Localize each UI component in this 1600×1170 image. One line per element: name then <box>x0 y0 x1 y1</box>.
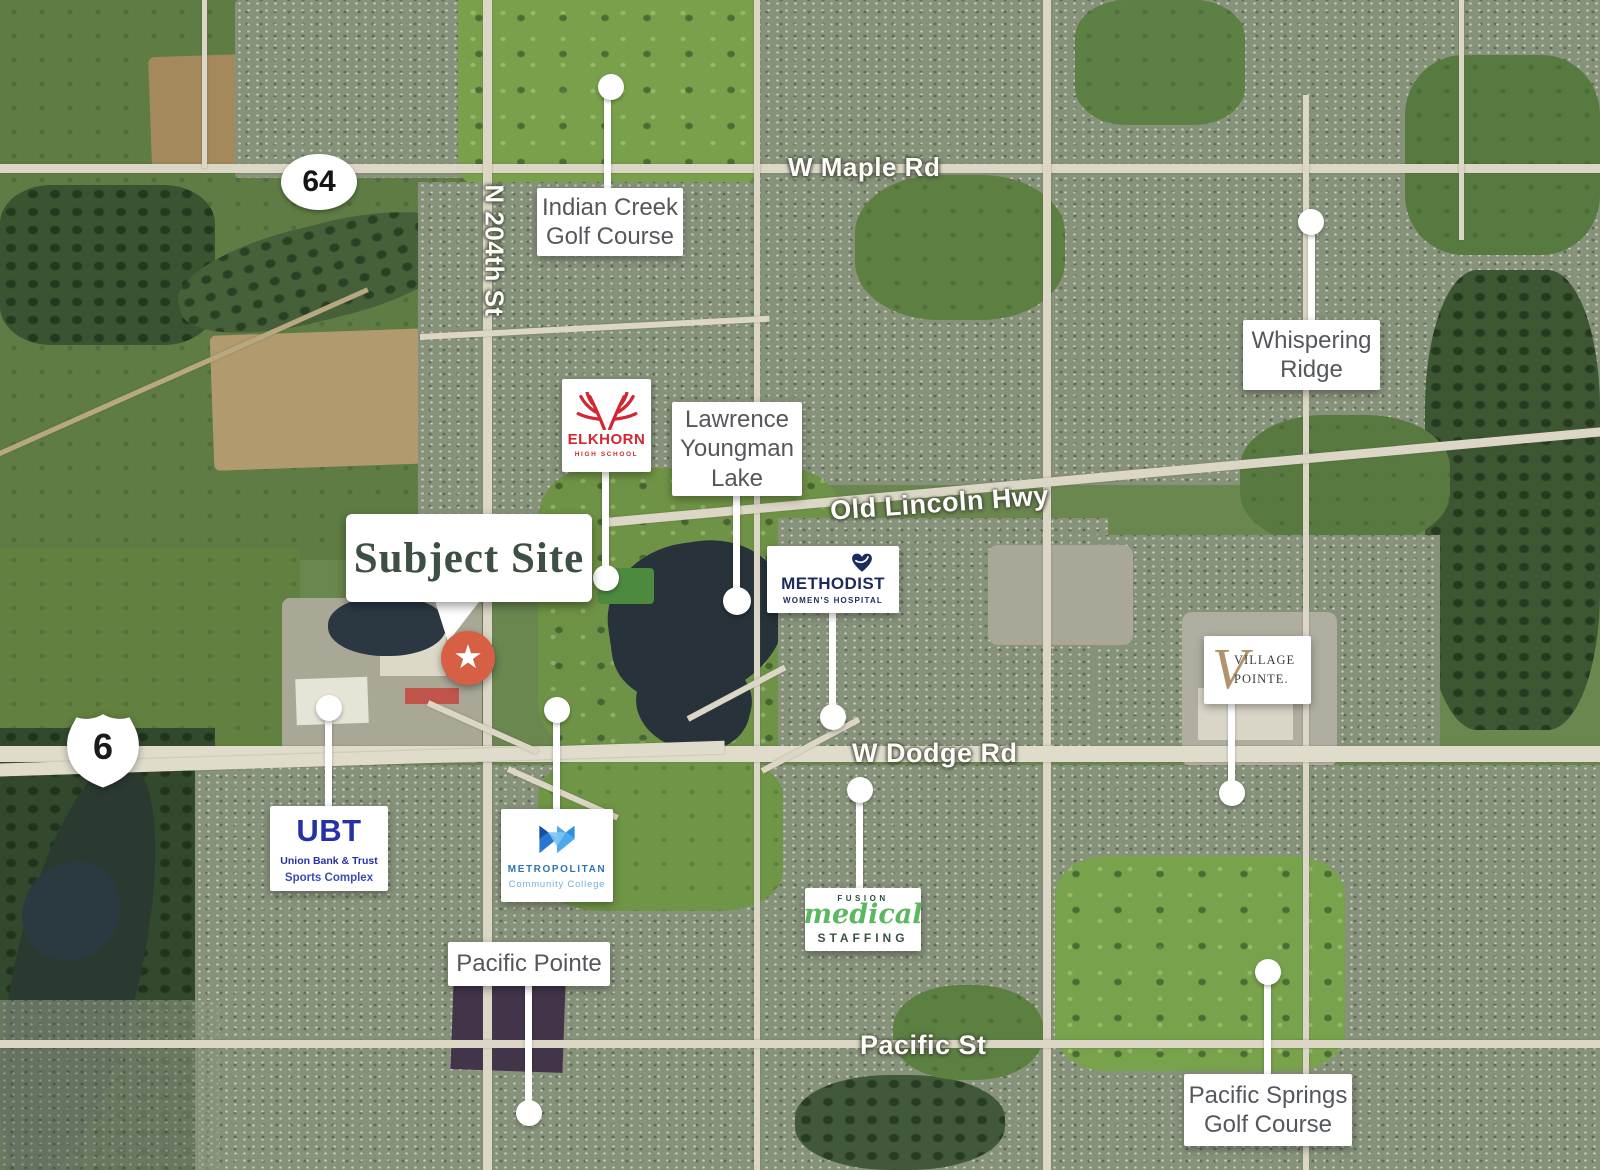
subject-site-bubble: Subject Site <box>346 514 592 602</box>
map-terrain-patch <box>855 175 1065 320</box>
callout-label-line: Youngman <box>680 434 794 463</box>
subject-site-label: Subject Site <box>354 534 585 583</box>
map-terrain-patch <box>210 328 435 471</box>
road-line <box>202 0 207 168</box>
callout-dot <box>516 1100 542 1126</box>
callout-fusion-medical-staffing: FUSION medical STAFFING <box>805 888 921 951</box>
methodist-heart-icon <box>851 553 873 573</box>
road-label-n-204th-st: N 204th St <box>479 181 510 321</box>
ubt-line1: Union Bank & Trust <box>280 855 377 868</box>
callout-elkhorn-high-school: ELKHORN HIGH SCHOOL <box>562 379 651 472</box>
ubt-line2: Sports Complex <box>285 871 373 885</box>
map-commercial-patch <box>988 545 1133 645</box>
callout-dot <box>723 587 751 615</box>
callout-dot <box>593 565 619 591</box>
callout-line <box>733 494 740 602</box>
map-terrain-patch <box>795 1075 1005 1170</box>
elkhorn-antlers-icon <box>571 392 643 430</box>
map-terrain-patch <box>0 185 215 345</box>
elkhorn-subtitle: HIGH SCHOOL <box>575 451 638 459</box>
metropolitan-m-icon <box>535 821 579 859</box>
map-terrain-patch <box>1240 415 1450 545</box>
callout-lawrence-youngman-lake: Lawrence Youngman Lake <box>672 402 802 496</box>
road-pacific-st <box>0 1040 1600 1048</box>
callout-line <box>1308 220 1315 322</box>
road-line <box>1043 0 1051 1170</box>
callout-label-line: Ridge <box>1280 355 1343 384</box>
callout-dot <box>820 704 846 730</box>
fusion-line3: STAFFING <box>817 931 908 946</box>
callout-line <box>856 788 863 890</box>
map-golf-course-patch <box>1055 856 1345 1071</box>
road-label-w-dodge-rd: W Dodge Rd <box>852 738 1017 769</box>
callout-line <box>602 470 609 580</box>
road-label-pacific-st: Pacific St <box>860 1030 987 1061</box>
callout-indian-creek-golf-course: Indian Creek Golf Course <box>537 188 683 256</box>
callout-pacific-springs-golf-course: Pacific Springs Golf Course <box>1184 1074 1352 1146</box>
subject-site-marker: ★ <box>441 631 495 685</box>
callout-line <box>829 611 836 718</box>
callout-line <box>1264 974 1271 1076</box>
callout-line <box>553 708 560 811</box>
methodist-wordmark: METHODIST <box>781 574 885 595</box>
callout-dot <box>544 697 570 723</box>
map-terrain-patch <box>0 1000 220 1170</box>
metropolitan-subtitle: Community College <box>509 879 606 891</box>
route-6-number: 6 <box>64 726 142 768</box>
road-line <box>1459 0 1464 240</box>
callout-dot <box>1298 209 1324 235</box>
route-6-shield: 6 <box>64 710 142 790</box>
callout-line <box>325 706 332 808</box>
fusion-medical-script: medical <box>803 899 922 932</box>
callout-label-line: Pacific Springs <box>1189 1081 1348 1110</box>
village-pointe-wordmark: VILLAGE POINTE. <box>1234 651 1295 690</box>
callout-dot <box>316 695 342 721</box>
callout-ubt-sports-complex: UBT Union Bank & Trust Sports Complex <box>270 806 388 891</box>
village-pointe-line1: VILLAGE <box>1234 651 1295 670</box>
callout-label-line: Pacific Pointe <box>456 949 601 978</box>
star-icon: ★ <box>453 640 483 673</box>
road-label-w-maple-rd: W Maple Rd <box>788 152 940 183</box>
callout-line <box>525 984 532 1114</box>
methodist-subtitle: WOMEN'S HOSPITAL <box>783 596 883 606</box>
callout-label-line: Lake <box>711 464 763 493</box>
callout-label-line: Golf Course <box>1204 1110 1332 1139</box>
callout-dot <box>1255 959 1281 985</box>
elkhorn-wordmark: ELKHORN <box>568 431 646 449</box>
callout-dot <box>1219 780 1245 806</box>
callout-line <box>604 86 611 190</box>
map-terrain-patch <box>1405 55 1600 255</box>
ubt-wordmark: UBT <box>296 812 361 850</box>
callout-label-line: Indian Creek <box>542 193 678 222</box>
map-terrain-patch <box>1075 0 1245 125</box>
map-terrain-patch <box>1425 270 1600 730</box>
callout-label-line: Golf Course <box>546 222 674 251</box>
callout-whispering-ridge: Whispering Ridge <box>1243 320 1380 390</box>
route-64-shield: 64 <box>281 154 357 210</box>
callout-dot <box>847 777 873 803</box>
village-pointe-line2: POINTE. <box>1234 670 1295 689</box>
callout-village-pointe: V VILLAGE POINTE. <box>1204 636 1311 704</box>
route-64-number: 64 <box>302 165 335 199</box>
aerial-site-map: W Maple Rd N 204th St Old Lincoln Hwy W … <box>0 0 1600 1170</box>
callout-label-line: Whispering <box>1251 326 1371 355</box>
road-line <box>754 0 760 1170</box>
callout-methodist-womens-hospital: METHODIST WOMEN'S HOSPITAL <box>767 546 899 613</box>
map-lake <box>328 596 446 656</box>
callout-pacific-pointe: Pacific Pointe <box>448 942 610 986</box>
callout-label-line: Lawrence <box>685 405 789 434</box>
map-terrain-patch <box>450 981 565 1073</box>
callout-metropolitan-community-college: METROPOLITAN Community College <box>501 809 613 902</box>
callout-dot <box>598 74 624 100</box>
map-terrain-patch <box>235 0 470 178</box>
metropolitan-wordmark: METROPOLITAN <box>508 864 606 876</box>
